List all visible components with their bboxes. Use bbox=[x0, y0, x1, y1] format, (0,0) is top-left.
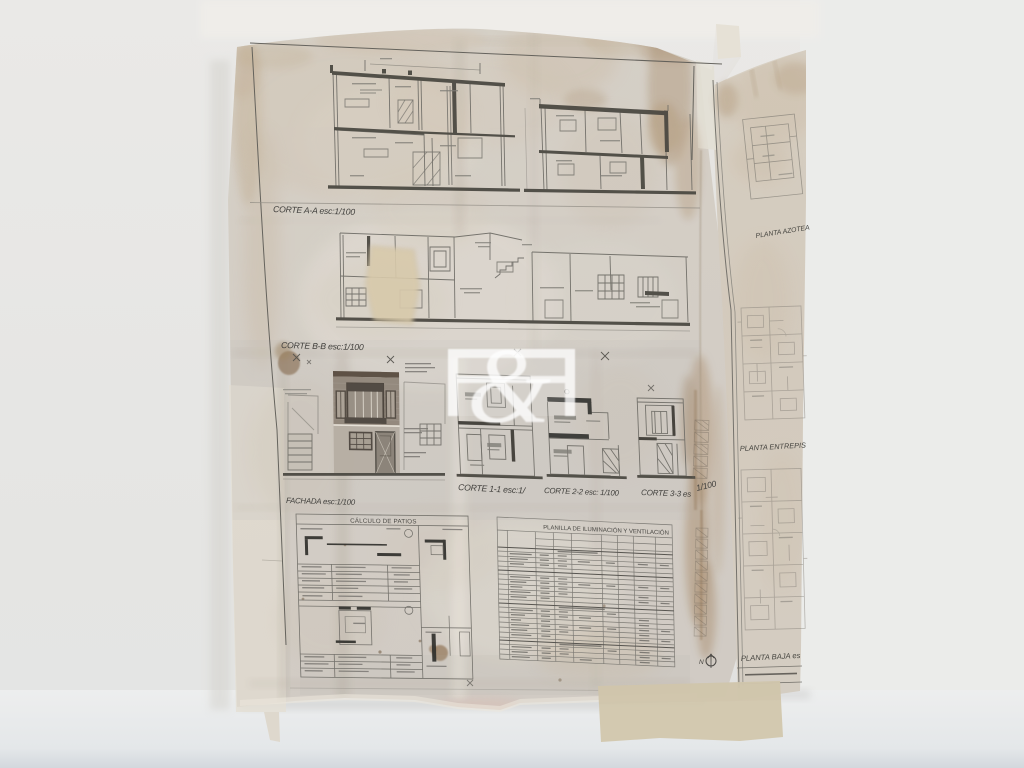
svg-text:FACHADA esc:1/100: FACHADA esc:1/100 bbox=[286, 496, 356, 507]
svg-text:CORTE 3-3 es: CORTE 3-3 es bbox=[641, 488, 691, 499]
svg-text:&: & bbox=[467, 327, 551, 446]
svg-text:CÁLCULO DE PATIOS: CÁLCULO DE PATIOS bbox=[350, 518, 417, 526]
svg-text:N: N bbox=[699, 659, 704, 666]
